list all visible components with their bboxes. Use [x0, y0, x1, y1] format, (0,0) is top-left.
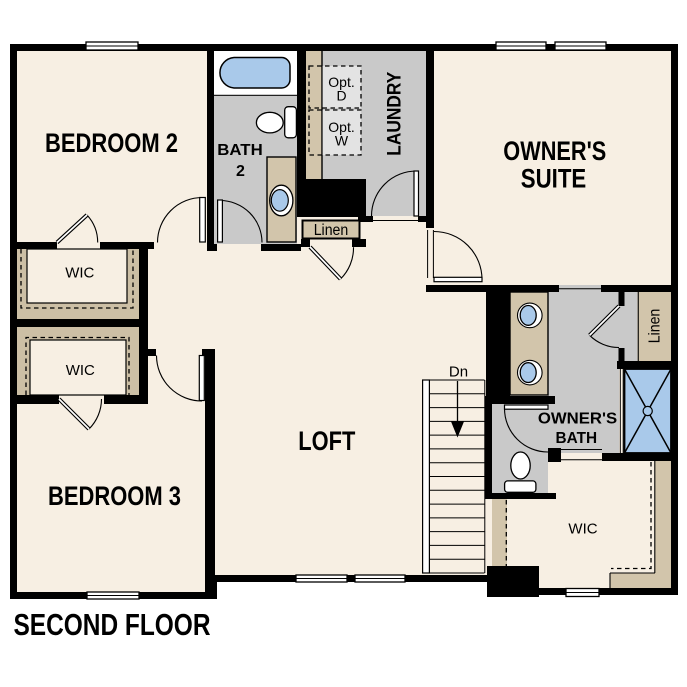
svg-text:LAUNDRY: LAUNDRY — [385, 71, 406, 155]
svg-text:BATH: BATH — [556, 430, 598, 447]
svg-text:BEDROOM 2: BEDROOM 2 — [45, 128, 178, 158]
svg-text:SECOND FLOOR: SECOND FLOOR — [14, 607, 211, 642]
svg-text:W: W — [335, 133, 349, 149]
svg-text:SUITE: SUITE — [521, 164, 587, 194]
svg-text:OWNER'S: OWNER'S — [503, 136, 606, 166]
svg-text:D: D — [336, 88, 346, 104]
svg-text:2: 2 — [236, 163, 245, 180]
svg-text:Linen: Linen — [647, 309, 664, 344]
svg-text:WIC: WIC — [568, 521, 597, 538]
svg-text:WIC: WIC — [65, 265, 94, 282]
svg-text:WIC: WIC — [66, 362, 95, 379]
svg-text:LOFT: LOFT — [298, 426, 355, 456]
svg-text:Linen: Linen — [314, 222, 349, 239]
svg-text:BATH: BATH — [217, 142, 262, 159]
svg-text:OWNER'S: OWNER'S — [538, 411, 618, 428]
svg-text:Dn: Dn — [449, 364, 468, 381]
svg-text:BEDROOM 3: BEDROOM 3 — [48, 481, 181, 511]
